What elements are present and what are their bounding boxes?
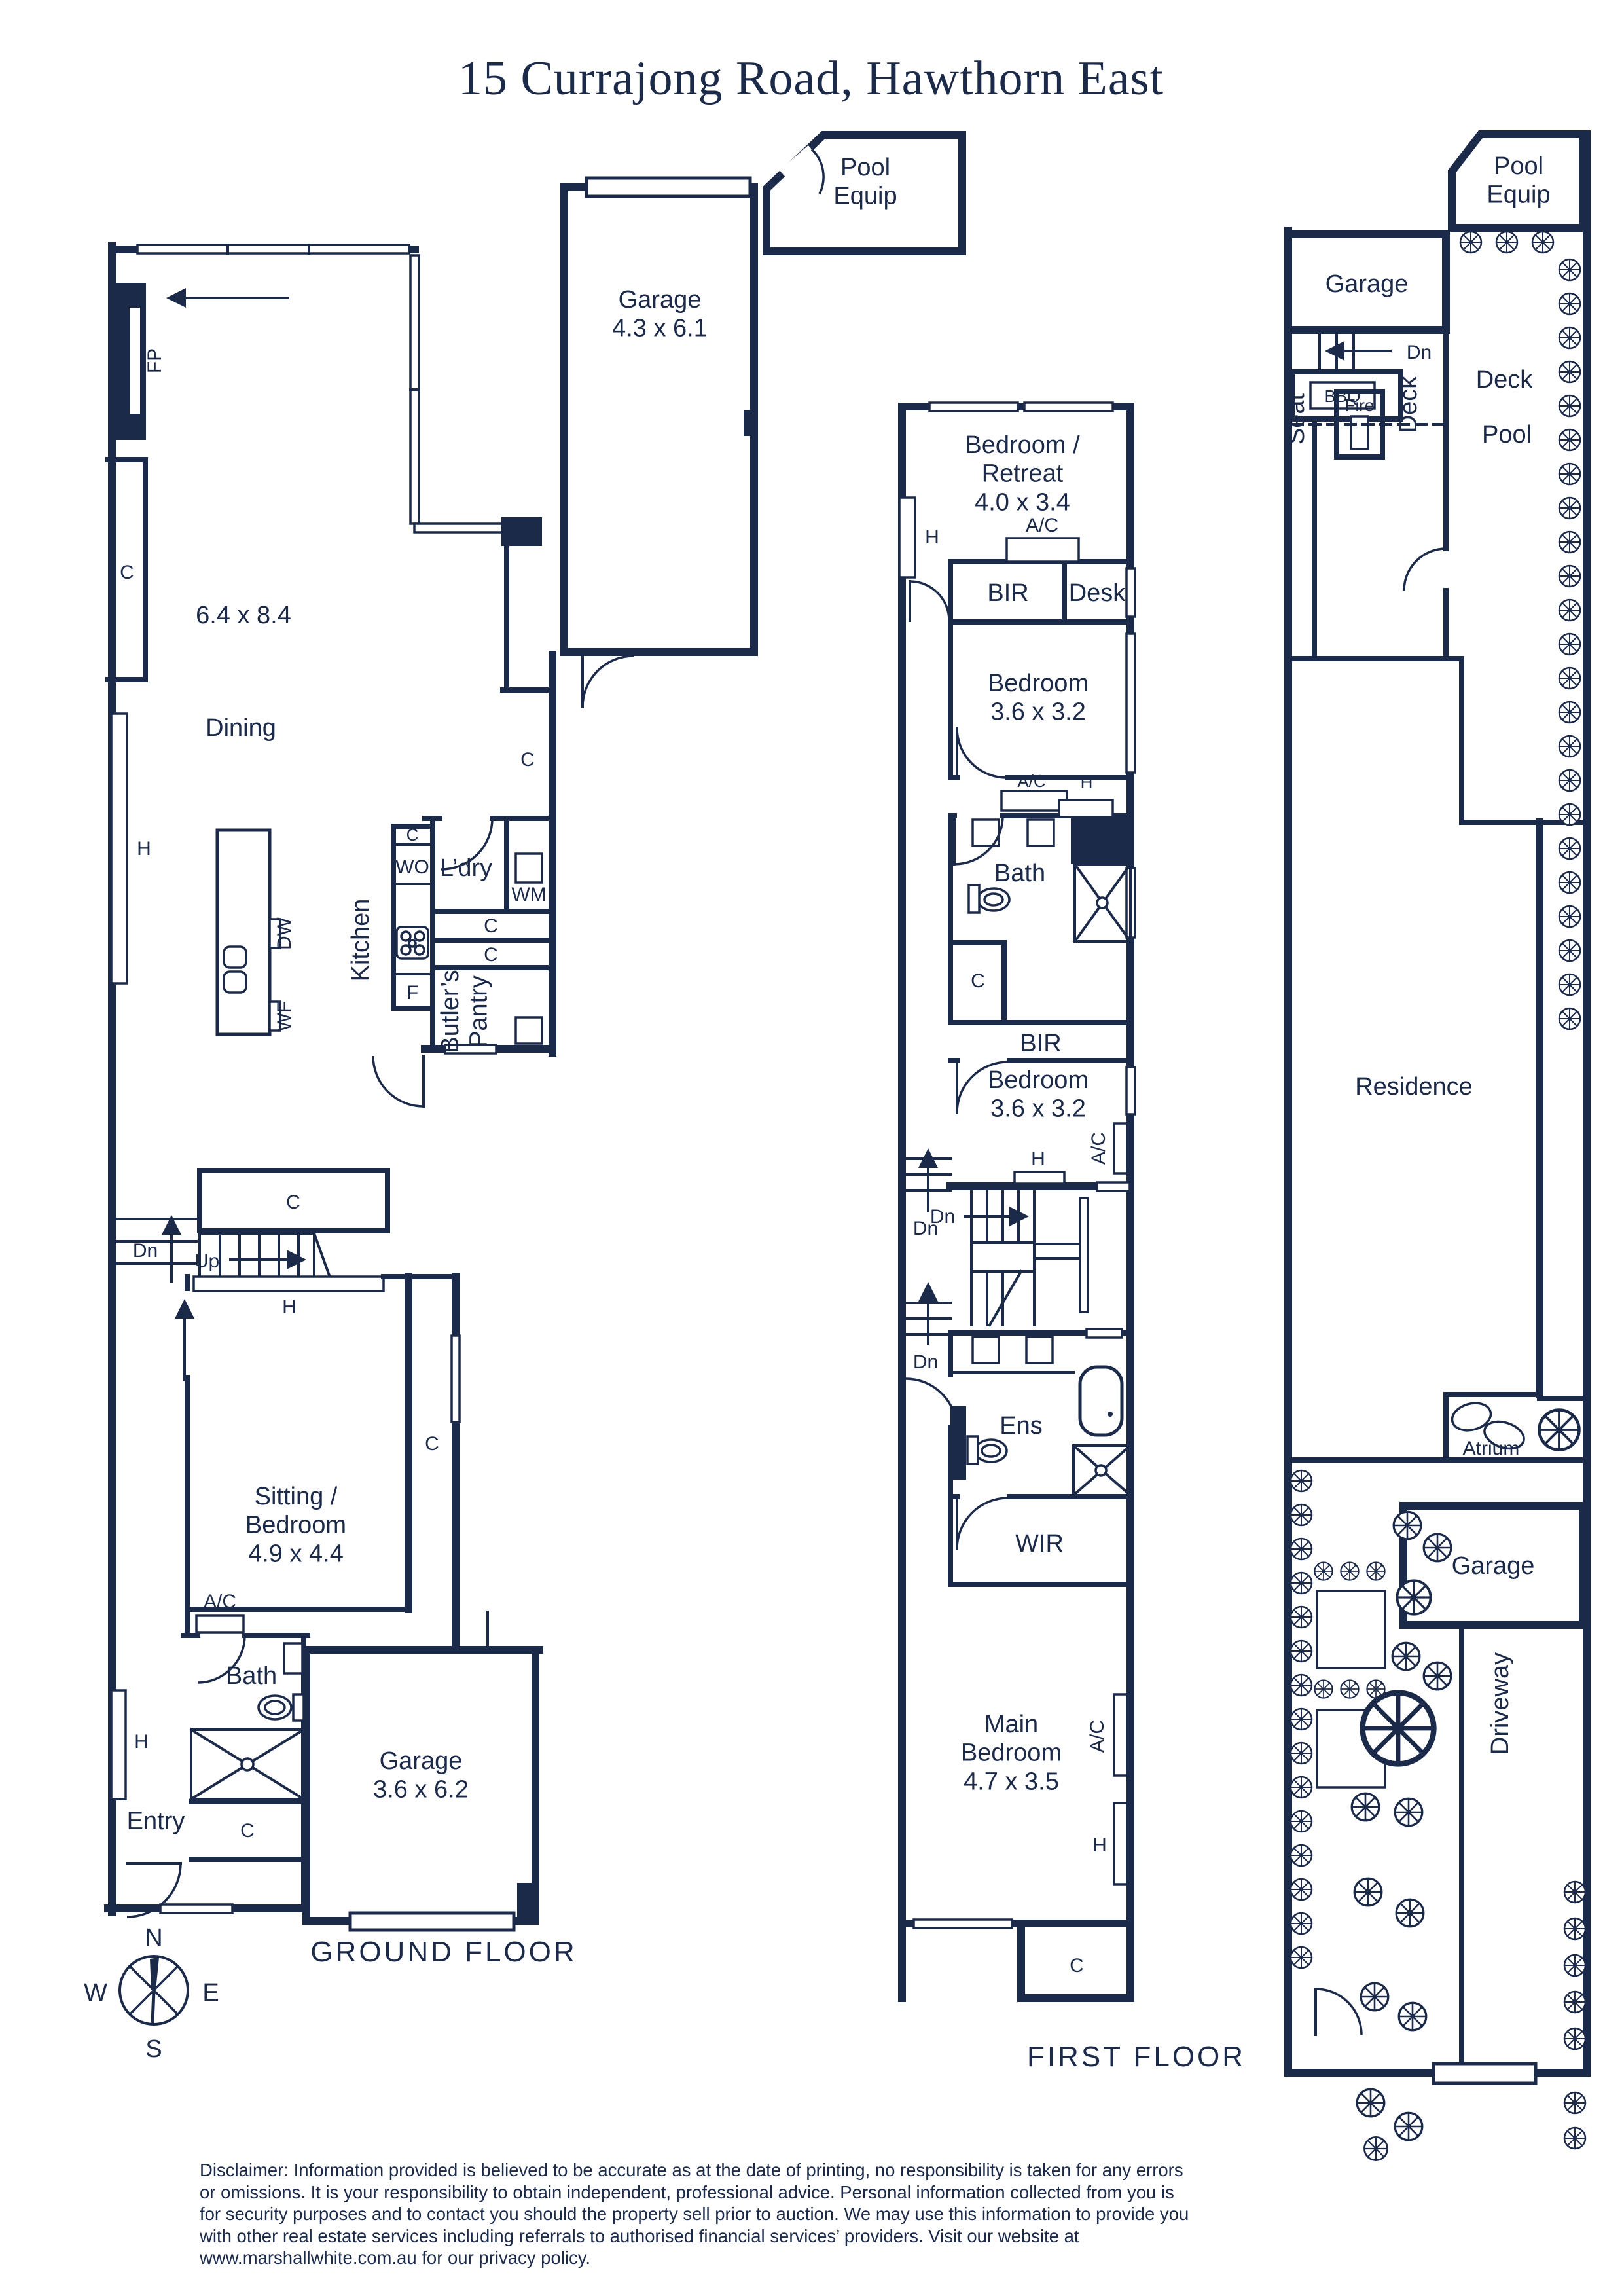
shower-rose [1097, 898, 1108, 908]
basin [973, 1337, 999, 1363]
heater-panel [899, 498, 915, 577]
ac-label: A/C [1088, 1132, 1109, 1165]
compass-west: W [84, 1979, 107, 2007]
wall-oven-label: WO [395, 856, 429, 878]
washing-machine-label: WM [511, 884, 546, 905]
heater-label: H [137, 838, 151, 860]
heater-label: H [282, 1296, 297, 1318]
pool-label: Pool [1482, 421, 1532, 448]
door-arc [906, 1379, 957, 1430]
bir-label: BIR [1020, 1030, 1061, 1057]
entry-label: Entry [127, 1808, 185, 1835]
washing-machine [516, 854, 542, 883]
heater-panel [111, 1690, 126, 1799]
ac-unit [1114, 1123, 1127, 1173]
deck-label: Deck [1395, 376, 1422, 433]
retreat-label: Bedroom /Retreat4.0 x 3.4 [965, 431, 1080, 516]
hedge-left-garden [1291, 1470, 1312, 1968]
heater-label: H [1031, 1148, 1045, 1170]
residence-label: Residence [1355, 1073, 1473, 1101]
compass: N E S W [84, 1924, 219, 2063]
kitchen-island [217, 830, 270, 1034]
bedroom-label: Bedroom3.6 x 3.2 [988, 670, 1089, 726]
heater-label: H [925, 526, 939, 548]
bath-label: Bath [226, 1662, 277, 1690]
driveway-crossover [1433, 2064, 1536, 2083]
door-arc [957, 1498, 1008, 1549]
main-bedroom-label: MainBedroom4.7 x 3.5 [961, 1711, 1062, 1795]
dishwasher-label: DW [274, 917, 295, 950]
fire-label: Fire [1345, 395, 1375, 415]
deck-label: Deck [1476, 366, 1534, 393]
heater-label: H [1092, 1834, 1107, 1856]
vanity [284, 1643, 302, 1673]
heater-panel [1114, 1803, 1127, 1884]
atrium-label: Atrium [1463, 1438, 1520, 1459]
sink [224, 947, 246, 968]
ground-floor-caption: GROUND FLOOR [310, 1936, 577, 1968]
planter [1317, 1591, 1385, 1668]
up-label: Up [194, 1250, 219, 1272]
basin [1026, 1337, 1053, 1363]
pool-equip-label: PoolEquip [1487, 153, 1550, 209]
garage-door [586, 178, 750, 196]
kitchen-label: Kitchen [347, 899, 374, 982]
ac-label: A/C [1087, 1720, 1108, 1753]
ac-unit [1114, 1694, 1127, 1776]
ground-floor-walls [108, 245, 552, 1930]
fp-label: FP [144, 348, 166, 373]
hedge-plant [1532, 232, 1553, 253]
fireplace [108, 283, 146, 440]
gate-arc [1316, 1989, 1361, 2035]
water-filter-label: WF [274, 1001, 295, 1032]
bir-label: BIR [987, 579, 1028, 607]
floorplan-canvas: FP C 6.4 x 8.4 H Dining C C WO L’dry WM … [0, 0, 1622, 2296]
cupboard-label: C [1070, 1955, 1084, 1977]
down-label: Dn [1407, 342, 1432, 363]
site-plan: PoolEquip Garage Deck Dn BBQ Seat Fire D… [1282, 134, 1587, 2160]
ac-unit [1007, 538, 1079, 562]
compass-east: E [202, 1979, 219, 2007]
cupboard-label: C [240, 1820, 255, 1842]
garage-label: Garage [1452, 1552, 1535, 1580]
pool-equip-label: PoolEquip [833, 154, 897, 210]
stair-landing [971, 1243, 1034, 1271]
heater-panel [1059, 800, 1113, 817]
compass-north: N [145, 1924, 162, 1952]
basin [1028, 820, 1054, 846]
down-label: Dn [133, 1240, 158, 1262]
hedge-plant [1460, 232, 1481, 253]
laundry-label: L’dry [440, 854, 492, 882]
garage-label: Garage3.6 x 6.2 [373, 1747, 469, 1804]
door-arc [910, 581, 949, 621]
heater-label: H [134, 1731, 149, 1753]
cupboard-label: C [484, 915, 498, 937]
bedroom-label: Bedroom3.6 x 3.2 [988, 1066, 1089, 1123]
ac-unit [1001, 791, 1067, 811]
heater-panel [1015, 1172, 1064, 1184]
bath-label: Bath [994, 860, 1045, 887]
ensuite-label: Ens [1000, 1412, 1042, 1440]
ac-label: A/C [1026, 515, 1058, 536]
cupboard-label: C [425, 1433, 439, 1455]
disclaimer-text: Disclaimer: Information provided is beli… [200, 2159, 1195, 2269]
ac-unit [196, 1616, 243, 1633]
shower-rose [1096, 1465, 1106, 1476]
bathtub [1080, 1367, 1122, 1435]
shower-rose [242, 1758, 253, 1770]
down-label: Dn [930, 1206, 955, 1228]
door-arc [583, 656, 634, 707]
sink [224, 972, 246, 993]
pantry-sink [516, 1017, 542, 1044]
atrium-tree [1540, 1410, 1579, 1450]
cupboard-label: C [286, 1192, 300, 1213]
first-floor-plan: Bedroom /Retreat4.0 x 3.4 H A/C BIR Desk… [899, 403, 1246, 2073]
heater-panel [111, 714, 127, 983]
desk-label: Desk [1069, 579, 1126, 607]
ground-floor-plan: FP C 6.4 x 8.4 H Dining C C WO L’dry WM … [84, 245, 577, 2063]
hedge-right [1559, 259, 1580, 1029]
heater-label: H [1081, 773, 1093, 792]
door-arc [957, 728, 1007, 778]
wir-label: WIR [1015, 1530, 1064, 1558]
door-arc [373, 1056, 424, 1106]
room-dims: 6.4 x 8.4 [196, 602, 291, 629]
door-arc [812, 149, 823, 194]
dining-label: Dining [206, 714, 276, 742]
driveway-label: Driveway [1487, 1652, 1514, 1755]
cupboard-label: C [484, 944, 498, 966]
ac-label: A/C [1017, 771, 1045, 791]
cupboard-label: C [520, 749, 535, 771]
compass-south: S [145, 2035, 162, 2063]
door-arc [1404, 549, 1446, 591]
ac-label: A/C [204, 1591, 236, 1613]
butlers-pantry-label: Butler’sPantry [437, 970, 493, 1053]
fridge-label: F [406, 982, 418, 1004]
cupboard-label: C [120, 562, 134, 583]
hedge-plant [1496, 232, 1517, 253]
first-floor-caption: FIRST FLOOR [1027, 2041, 1246, 2073]
cupboard-label: C [971, 970, 985, 992]
down-label: Dn [913, 1351, 938, 1373]
garage-label: Garage4.3 x 6.1 [612, 286, 708, 342]
garage-label: Garage [1325, 270, 1409, 298]
sitting-room-label: Sitting /Bedroom4.9 x 4.4 [245, 1483, 346, 1567]
seat-label: Seat [1282, 393, 1310, 445]
cupboard-label: C [406, 825, 419, 845]
